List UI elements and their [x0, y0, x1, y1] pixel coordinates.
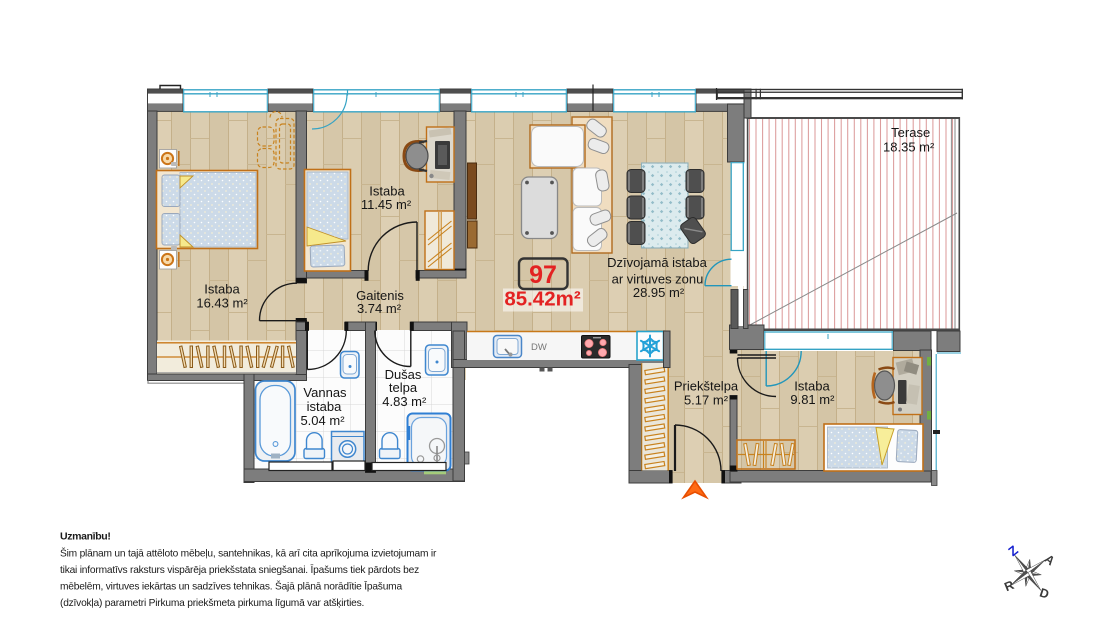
svg-text:18.35 m²: 18.35 m² [883, 139, 935, 154]
svg-text:3.74 m²: 3.74 m² [357, 301, 402, 316]
svg-text:11.45 m²: 11.45 m² [361, 197, 412, 212]
svg-text:Šim plānam un tajā attēloto mē: Šim plānam un tajā attēloto mēbeļu, sant… [60, 547, 437, 560]
svg-text:4.83 m²: 4.83 m² [382, 394, 427, 409]
svg-text:28.95 m²: 28.95 m² [633, 285, 685, 300]
svg-text:97: 97 [529, 261, 557, 289]
svg-text:Terase: Terase [891, 125, 930, 140]
svg-text:5.17 m²: 5.17 m² [684, 392, 729, 407]
svg-text:DW: DW [531, 342, 547, 353]
svg-text:85.42m²: 85.42m² [504, 288, 581, 311]
svg-text:mēbelēm, virtuves iekārtas un: mēbelēm, virtuves iekārtas un sadzīves t… [60, 580, 402, 593]
svg-text:5.04 m²: 5.04 m² [300, 413, 345, 428]
svg-text:9.81 m²: 9.81 m² [790, 392, 835, 407]
svg-text:telpa: telpa [389, 380, 418, 395]
svg-text:(dzīvokļa) parametri Pirkuma p: (dzīvokļa) parametri Pirkuma priekšmeta … [60, 598, 364, 609]
svg-text:Istaba: Istaba [204, 282, 240, 297]
svg-text:Vannas: Vannas [303, 385, 347, 400]
svg-text:Dzīvojamā istaba: Dzīvojamā istaba [607, 255, 707, 270]
svg-text:Uzmanību!: Uzmanību! [60, 531, 111, 543]
svg-text:istaba: istaba [307, 399, 342, 414]
svg-text:16.43 m²: 16.43 m² [196, 296, 248, 311]
svg-text:tikai informatīvs raksturs vis: tikai informatīvs raksturs vispārēja pri… [60, 564, 419, 576]
